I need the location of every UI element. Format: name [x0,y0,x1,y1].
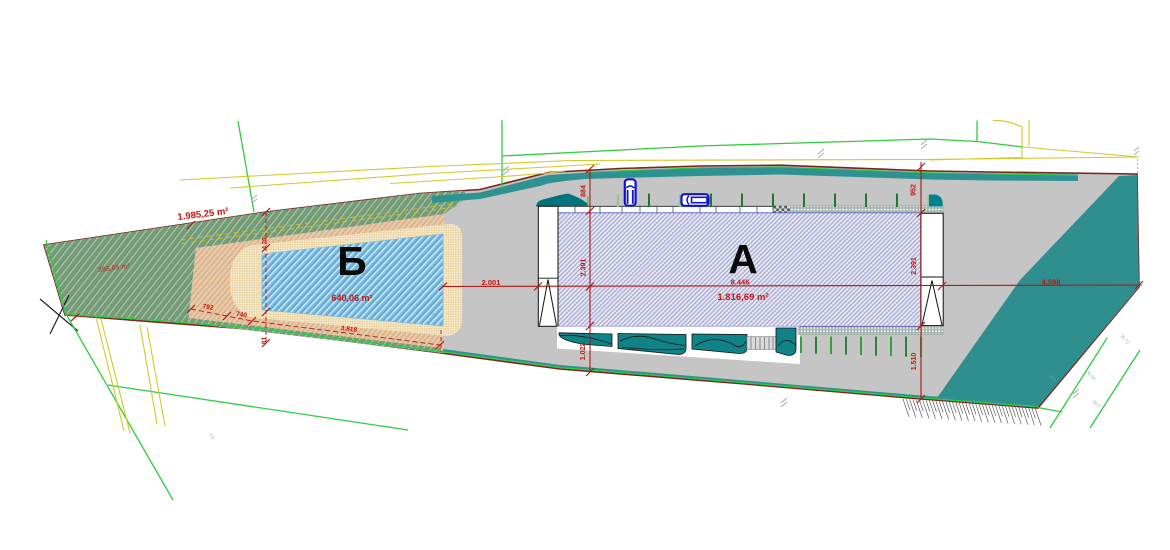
svg-text:2.391: 2.391 [581,259,588,277]
svg-text:1.816,69 m²: 1.816,69 m² [717,292,768,303]
svg-text:А: А [728,236,758,282]
svg-text:2.001: 2.001 [482,278,501,287]
svg-text:884: 884 [581,185,588,197]
svg-text:4.26: 4.26 [263,237,269,249]
svg-text:2.391: 2.391 [911,257,918,275]
svg-text:81: 81 [262,337,269,345]
svg-text:8.446: 8.446 [731,278,750,287]
svg-text:Б: Б [337,238,366,284]
svg-text:1.510: 1.510 [911,353,918,371]
svg-text:4.598: 4.598 [1042,278,1061,287]
svg-text:1.022: 1.022 [580,343,587,361]
svg-text:640,06 m²: 640,06 m² [331,293,372,303]
svg-text:952: 952 [911,184,918,196]
